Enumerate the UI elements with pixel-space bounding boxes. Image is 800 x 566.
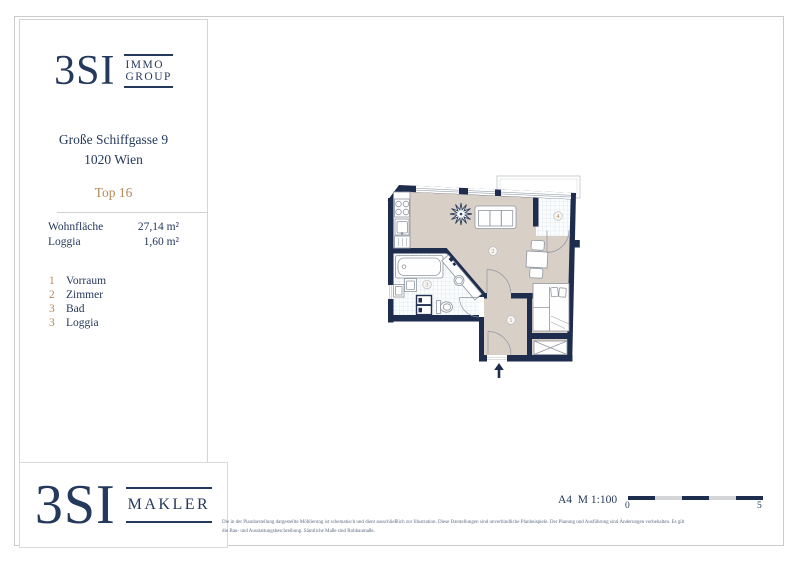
sofa [475,206,516,229]
legend-number: 2 [49,288,66,302]
disclaimer-line1: Die in der Plandarstellung dargestellte … [222,519,787,528]
legend-label: Zimmer [66,288,103,302]
immo-group-wordmark: IMMO GROUP [124,54,172,89]
legend-number: 3 [49,302,66,316]
scale-label-end: 5 [757,501,762,511]
area-value: 1,60 m² [144,235,179,250]
unit-label: Top 16 [20,185,207,201]
makler-wordmark: MAKLER [126,487,213,523]
legend-number: 3 [49,316,66,330]
room-number-4: 4 [557,214,560,220]
address-line2: 1020 Wien [20,152,207,168]
legend-label: Vorraum [66,274,106,288]
immo-group-logo: 3SI IMMO GROUP [20,50,207,92]
sidebar-divider [57,212,208,213]
area-row-wohnflaeche: Wohnfläche 27,14 m² [48,220,179,235]
entry-arrow-icon [494,363,504,378]
logo-line-immo: IMMO [125,59,171,71]
toilet [437,301,453,314]
legend-row-bad: 3 Bad [49,302,178,316]
area-label: Wohnfläche [48,220,103,235]
wardrobe [534,341,567,355]
room-legend: 1 Vorraum 2 Zimmer 3 Bad 3 Loggia [20,274,207,330]
makler-card: 3SI MAKLER [19,462,228,548]
sidebar-card: 3SI IMMO GROUP Große Schiffgasse 9 1020 … [19,19,208,463]
disclaimer-line2: die Bau- und Ausstattungsbeschreibung. S… [222,528,787,537]
legend-row-loggia: 3 Loggia [49,316,178,330]
brand-3si: 3SI [54,50,115,92]
area-label: Loggia [48,235,81,250]
floorplan-svg: 1 2 3 4 [383,164,603,378]
washing-machine [417,296,432,315]
bathtub [396,256,444,279]
legend-number: 1 [49,274,66,288]
legend-row-vorraum: 1 Vorraum [49,274,178,288]
format-scale-label: A4 M 1:100 [558,494,617,506]
disclaimer-text: Die in der Plandarstellung dargestellte … [222,519,787,536]
scale-bar [628,496,763,500]
address-line1: Große Schiffgasse 9 [20,132,207,148]
makler-label: MAKLER [128,497,211,513]
brand-3si: 3SI [35,477,116,533]
logo-line-group: GROUP [125,71,171,83]
bed [533,284,569,332]
area-value: 27,14 m² [138,220,179,235]
scale-label-start: 0 [625,501,630,511]
room-number-2: 2 [492,249,495,255]
legend-row-zimmer: 2 Zimmer [49,288,178,302]
room-number-3: 3 [426,283,429,289]
room-number-1: 1 [510,318,513,324]
area-row-loggia: Loggia 1,60 m² [48,235,179,250]
legend-label: Loggia [66,316,99,330]
legend-label: Bad [66,302,85,316]
area-table: Wohnfläche 27,14 m² Loggia 1,60 m² [20,220,207,250]
